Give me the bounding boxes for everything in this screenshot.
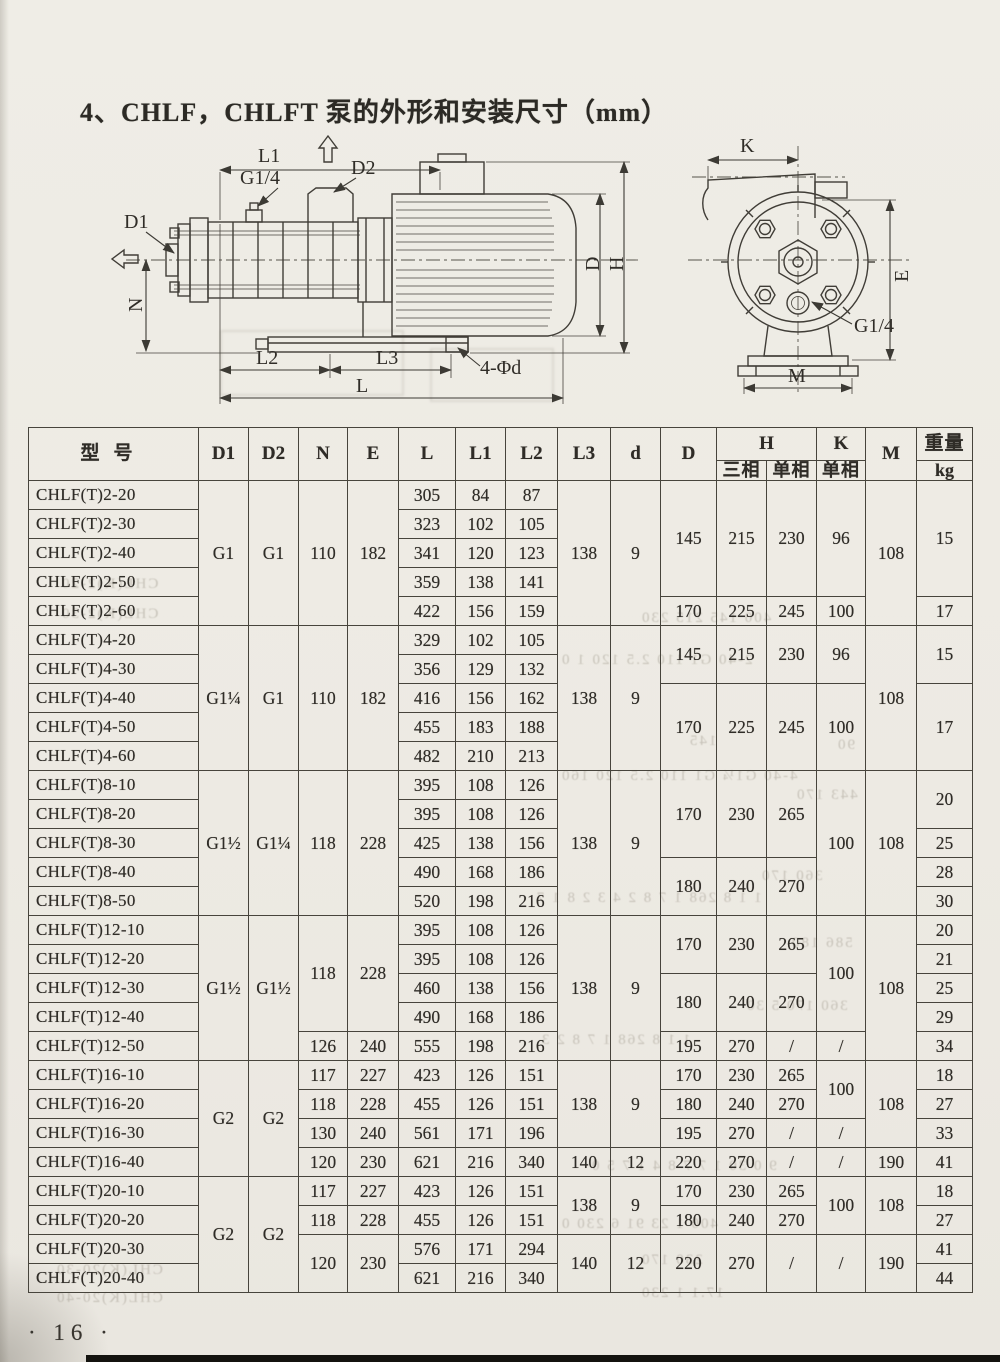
col-header-d-big: D bbox=[661, 428, 717, 481]
table-row: CHLF(T)2-20G1G11101823058487138914521523… bbox=[29, 481, 973, 510]
value-cell: 9 bbox=[611, 916, 661, 1061]
value-cell: 168 bbox=[456, 1003, 506, 1032]
value-cell: 395 bbox=[399, 800, 456, 829]
value-cell: 108 bbox=[866, 481, 917, 626]
value-cell: 41 bbox=[917, 1235, 973, 1264]
value-cell: 230 bbox=[717, 1061, 767, 1090]
flow-out-arrow-icon bbox=[319, 136, 337, 162]
value-cell: 329 bbox=[399, 626, 456, 655]
value-cell: G1 bbox=[249, 481, 299, 626]
value-cell: 198 bbox=[456, 1032, 506, 1061]
value-cell: 126 bbox=[456, 1061, 506, 1090]
lantern-bracket bbox=[358, 218, 392, 337]
value-cell: 25 bbox=[917, 974, 973, 1003]
value-cell: 168 bbox=[456, 858, 506, 887]
model-cell: CHLF(T)2-40 bbox=[29, 539, 199, 568]
value-cell: 183 bbox=[456, 713, 506, 742]
dim-label-d2: D2 bbox=[351, 157, 375, 179]
value-cell: 151 bbox=[506, 1206, 558, 1235]
value-cell: 108 bbox=[456, 800, 506, 829]
value-cell: 228 bbox=[348, 1090, 399, 1119]
value-cell: 12 bbox=[611, 1235, 661, 1293]
value-cell: 395 bbox=[399, 945, 456, 974]
value-cell: 100 bbox=[817, 916, 866, 1032]
value-cell: 130 bbox=[299, 1119, 348, 1148]
model-cell: CHLF(T)2-20 bbox=[29, 481, 199, 510]
col-header-kg: kg bbox=[917, 461, 973, 481]
value-cell: 423 bbox=[399, 1061, 456, 1090]
value-cell: G1 bbox=[199, 481, 249, 626]
value-cell: 132 bbox=[506, 655, 558, 684]
value-cell: 240 bbox=[717, 858, 767, 916]
value-cell: 118 bbox=[299, 916, 348, 1032]
table-row: CHLF(T)12-50126240555198216195270//34 bbox=[29, 1032, 973, 1061]
flow-in-arrow-icon bbox=[112, 250, 138, 268]
dim-label-m: M bbox=[788, 365, 806, 387]
value-cell: 230 bbox=[767, 626, 817, 684]
pump-table-body: CHLF(T)2-20G1G11101823058487138914521523… bbox=[29, 481, 973, 1293]
value-cell: 170 bbox=[661, 1177, 717, 1206]
model-cell: CHLF(T)2-50 bbox=[29, 568, 199, 597]
value-cell: 105 bbox=[506, 510, 558, 539]
value-cell: 162 bbox=[506, 684, 558, 713]
model-cell: CHLF(T)2-60 bbox=[29, 597, 199, 626]
model-cell: CHLF(T)12-20 bbox=[29, 945, 199, 974]
dim-label-4-phi-d: 4-Φd bbox=[480, 357, 521, 379]
col-header-h: H bbox=[717, 428, 817, 461]
model-cell: CHLF(T)4-30 bbox=[29, 655, 199, 684]
table-row: CHLF(T)4-4041615616217022524510017 bbox=[29, 684, 973, 713]
value-cell: 156 bbox=[456, 684, 506, 713]
col-header-n: N bbox=[299, 428, 348, 481]
value-cell: 27 bbox=[917, 1206, 973, 1235]
dimension-table: 型号 D1 D2 N E L L1 L2 L3 d D H K M 重量 三相 … bbox=[28, 427, 973, 1293]
value-cell: 621 bbox=[399, 1148, 456, 1177]
value-cell: 395 bbox=[399, 916, 456, 945]
value-cell: 555 bbox=[399, 1032, 456, 1061]
value-cell: 265 bbox=[767, 771, 817, 858]
model-cell: CHLF(T)20-10 bbox=[29, 1177, 199, 1206]
value-cell: 170 bbox=[661, 684, 717, 771]
value-cell: 228 bbox=[348, 916, 399, 1032]
table-row: CHLF(T)12-10G1½G1½1182283951081261389170… bbox=[29, 916, 973, 945]
col-header-l2: L2 bbox=[506, 428, 558, 481]
value-cell: 240 bbox=[717, 974, 767, 1032]
pump-side-view-drawing: L1 G1/4 D2 D1 N L2 L3 L 4-Φd D H bbox=[108, 132, 648, 422]
value-cell: 490 bbox=[399, 858, 456, 887]
value-cell: 138 bbox=[558, 1061, 611, 1148]
value-cell: 460 bbox=[399, 974, 456, 1003]
value-cell: 270 bbox=[717, 1148, 767, 1177]
value-cell: 18 bbox=[917, 1177, 973, 1206]
dim-label-g14-end: G1/4 bbox=[854, 315, 894, 337]
value-cell: 245 bbox=[767, 597, 817, 626]
model-cell: CHLF(T)16-20 bbox=[29, 1090, 199, 1119]
col-header-d1: D1 bbox=[199, 428, 249, 481]
value-cell: 138 bbox=[456, 974, 506, 1003]
value-cell: 265 bbox=[767, 1177, 817, 1206]
value-cell: 84 bbox=[456, 481, 506, 510]
value-cell: 576 bbox=[399, 1235, 456, 1264]
value-cell: 195 bbox=[661, 1119, 717, 1148]
table-row: CHLF(T)20-10G2G2117227423126151138917023… bbox=[29, 1177, 973, 1206]
value-cell: 240 bbox=[717, 1090, 767, 1119]
value-cell: 240 bbox=[348, 1032, 399, 1061]
value-cell: 422 bbox=[399, 597, 456, 626]
model-cell: CHLF(T)8-50 bbox=[29, 887, 199, 916]
value-cell: 425 bbox=[399, 829, 456, 858]
value-cell: 15 bbox=[917, 481, 973, 597]
value-cell: 138 bbox=[558, 626, 611, 771]
value-cell: 9 bbox=[611, 1061, 661, 1148]
value-cell: 138 bbox=[558, 1177, 611, 1235]
value-cell: 108 bbox=[456, 916, 506, 945]
value-cell: 151 bbox=[506, 1090, 558, 1119]
value-cell: 118 bbox=[299, 771, 348, 916]
value-cell: 25 bbox=[917, 829, 973, 858]
value-cell: 621 bbox=[399, 1264, 456, 1293]
value-cell: 44 bbox=[917, 1264, 973, 1293]
model-cell: CHLF(T)12-50 bbox=[29, 1032, 199, 1061]
value-cell: 220 bbox=[661, 1148, 717, 1177]
base-plate bbox=[256, 337, 468, 352]
col-header-e: E bbox=[348, 428, 399, 481]
value-cell: 561 bbox=[399, 1119, 456, 1148]
value-cell: 270 bbox=[767, 1090, 817, 1119]
value-cell: 27 bbox=[917, 1090, 973, 1119]
value-cell: 118 bbox=[299, 1090, 348, 1119]
table-row: CHLF(T)16-4012023062121634014012220270//… bbox=[29, 1148, 973, 1177]
value-cell: 215 bbox=[717, 626, 767, 684]
value-cell: 265 bbox=[767, 916, 817, 974]
value-cell: 20 bbox=[917, 916, 973, 945]
value-cell: 520 bbox=[399, 887, 456, 916]
value-cell: 120 bbox=[299, 1148, 348, 1177]
model-cell: CHLF(T)4-60 bbox=[29, 742, 199, 771]
value-cell: 171 bbox=[456, 1119, 506, 1148]
value-cell: 225 bbox=[717, 597, 767, 626]
value-cell: 126 bbox=[456, 1206, 506, 1235]
value-cell: 220 bbox=[661, 1235, 717, 1293]
motor-fins bbox=[396, 202, 554, 326]
value-cell: 96 bbox=[817, 481, 866, 597]
col-header-model: 型号 bbox=[29, 428, 199, 481]
value-cell: 110 bbox=[299, 481, 348, 626]
value-cell: 30 bbox=[917, 887, 973, 916]
value-cell: 180 bbox=[661, 1206, 717, 1235]
value-cell: 126 bbox=[506, 916, 558, 945]
col-header-k: K bbox=[817, 428, 866, 461]
table-row: CHLF(T)16-10G2G2117227423126151138917023… bbox=[29, 1061, 973, 1090]
col-header-l1: L1 bbox=[456, 428, 506, 481]
dim-label-d1: D1 bbox=[124, 211, 148, 233]
value-cell: 129 bbox=[456, 655, 506, 684]
value-cell: / bbox=[817, 1119, 866, 1148]
model-cell: CHLF(T)2-30 bbox=[29, 510, 199, 539]
value-cell: 100 bbox=[817, 1061, 866, 1119]
value-cell: 240 bbox=[348, 1119, 399, 1148]
value-cell: G2 bbox=[249, 1177, 299, 1293]
value-cell: 213 bbox=[506, 742, 558, 771]
col-header-h-3phase: 三相 bbox=[717, 461, 767, 481]
dim-label-l1: L1 bbox=[258, 145, 280, 167]
value-cell: 29 bbox=[917, 1003, 973, 1032]
col-header-weight: 重量 bbox=[917, 428, 973, 461]
value-cell: 270 bbox=[717, 1032, 767, 1061]
model-cell: CHLF(T)8-20 bbox=[29, 800, 199, 829]
value-cell: 156 bbox=[506, 829, 558, 858]
value-cell: 323 bbox=[399, 510, 456, 539]
value-cell: 110 bbox=[299, 626, 348, 771]
value-cell: 17 bbox=[917, 684, 973, 771]
value-cell: 341 bbox=[399, 539, 456, 568]
model-cell: CHLF(T)12-40 bbox=[29, 1003, 199, 1032]
dim-label-k: K bbox=[740, 135, 755, 157]
value-cell: 170 bbox=[661, 597, 717, 626]
model-cell: CHLF(T)12-30 bbox=[29, 974, 199, 1003]
value-cell: 156 bbox=[456, 597, 506, 626]
value-cell: 228 bbox=[348, 771, 399, 916]
dim-label-h: H bbox=[606, 257, 628, 271]
value-cell: 186 bbox=[506, 858, 558, 887]
discharge-port bbox=[308, 188, 353, 222]
value-cell: 126 bbox=[506, 800, 558, 829]
value-cell: 159 bbox=[506, 597, 558, 626]
value-cell: 34 bbox=[917, 1032, 973, 1061]
value-cell: 227 bbox=[348, 1177, 399, 1206]
value-cell: G1¼ bbox=[199, 626, 249, 771]
value-cell: 141 bbox=[506, 568, 558, 597]
value-cell: 270 bbox=[767, 858, 817, 916]
page-title: 4、CHLF，CHLFT 泵的外形和安装尺寸（mm） bbox=[80, 92, 668, 129]
value-cell: 230 bbox=[348, 1148, 399, 1177]
value-cell: 9 bbox=[611, 1177, 661, 1235]
model-cell: CHLF(T)8-40 bbox=[29, 858, 199, 887]
value-cell: 230 bbox=[348, 1235, 399, 1293]
value-cell: 230 bbox=[717, 1177, 767, 1206]
value-cell: 182 bbox=[348, 481, 399, 626]
value-cell: 108 bbox=[866, 771, 917, 916]
value-cell: 108 bbox=[866, 916, 917, 1061]
value-cell: 108 bbox=[456, 771, 506, 800]
value-cell: 455 bbox=[399, 1206, 456, 1235]
table-row: CHLF(T)8-10G1½G1¼11822839510812613891702… bbox=[29, 771, 973, 800]
dimension-table-wrap: 型号 D1 D2 N E L L1 L2 L3 d D H K M 重量 三相 … bbox=[28, 427, 973, 1293]
value-cell: 96 bbox=[817, 626, 866, 684]
value-cell: G2 bbox=[199, 1177, 249, 1293]
value-cell: 17 bbox=[917, 597, 973, 626]
value-cell: G1½ bbox=[249, 916, 299, 1061]
value-cell: 196 bbox=[506, 1119, 558, 1148]
value-cell: 216 bbox=[456, 1264, 506, 1293]
model-cell: CHLF(T)16-10 bbox=[29, 1061, 199, 1090]
value-cell: 170 bbox=[661, 771, 717, 858]
value-cell: 138 bbox=[558, 481, 611, 626]
model-cell: CHLF(T)12-10 bbox=[29, 916, 199, 945]
value-cell: 126 bbox=[506, 771, 558, 800]
value-cell: 108 bbox=[866, 1177, 917, 1235]
value-cell: 117 bbox=[299, 1061, 348, 1090]
value-cell: 28 bbox=[917, 858, 973, 887]
value-cell: 120 bbox=[456, 539, 506, 568]
value-cell: G1 bbox=[249, 626, 299, 771]
value-cell: / bbox=[767, 1032, 817, 1061]
value-cell: 216 bbox=[506, 887, 558, 916]
value-cell: 20 bbox=[917, 771, 973, 829]
value-cell: 265 bbox=[767, 1061, 817, 1090]
value-cell: 228 bbox=[348, 1206, 399, 1235]
value-cell: 123 bbox=[506, 539, 558, 568]
dim-label-l2: L2 bbox=[256, 347, 278, 369]
value-cell: 41 bbox=[917, 1148, 973, 1177]
model-cell: CHLF(T)20-20 bbox=[29, 1206, 199, 1235]
value-cell: 340 bbox=[506, 1264, 558, 1293]
value-cell: 108 bbox=[866, 1061, 917, 1148]
value-cell: G2 bbox=[199, 1061, 249, 1177]
value-cell: 340 bbox=[506, 1148, 558, 1177]
value-cell: 356 bbox=[399, 655, 456, 684]
value-cell: 100 bbox=[817, 1177, 866, 1235]
value-cell: G1¼ bbox=[249, 771, 299, 916]
value-cell: 126 bbox=[456, 1177, 506, 1206]
value-cell: 108 bbox=[456, 945, 506, 974]
value-cell: 180 bbox=[661, 974, 717, 1032]
value-cell: 108 bbox=[866, 626, 917, 771]
table-row: CHLF(T)16-30130240561171196195270//33 bbox=[29, 1119, 973, 1148]
value-cell: 215 bbox=[717, 481, 767, 597]
value-cell: 9 bbox=[611, 771, 661, 916]
value-cell: 156 bbox=[506, 974, 558, 1003]
model-cell: CHLF(T)8-10 bbox=[29, 771, 199, 800]
value-cell: 171 bbox=[456, 1235, 506, 1264]
col-header-m: M bbox=[866, 428, 917, 481]
value-cell: 138 bbox=[558, 916, 611, 1061]
value-cell: 33 bbox=[917, 1119, 973, 1148]
col-header-l: L bbox=[399, 428, 456, 481]
value-cell: 102 bbox=[456, 626, 506, 655]
col-header-l3: L3 bbox=[558, 428, 611, 481]
value-cell: 9 bbox=[611, 481, 661, 626]
dim-label-n: N bbox=[125, 298, 147, 312]
value-cell: 423 bbox=[399, 1177, 456, 1206]
value-cell: 305 bbox=[399, 481, 456, 510]
model-cell: CHLF(T)20-40 bbox=[29, 1264, 199, 1293]
value-cell: 117 bbox=[299, 1177, 348, 1206]
value-cell: 21 bbox=[917, 945, 973, 974]
value-cell: 140 bbox=[558, 1235, 611, 1293]
col-header-d-small: d bbox=[611, 428, 661, 481]
value-cell: 118 bbox=[299, 1206, 348, 1235]
value-cell: 15 bbox=[917, 626, 973, 684]
motor-body bbox=[392, 154, 576, 336]
value-cell: 490 bbox=[399, 1003, 456, 1032]
value-cell: 102 bbox=[456, 510, 506, 539]
value-cell: 270 bbox=[717, 1235, 767, 1293]
value-cell: 294 bbox=[506, 1235, 558, 1264]
value-cell: 270 bbox=[767, 974, 817, 1032]
dim-label-g14: G1/4 bbox=[240, 167, 280, 189]
table-row: CHLF(T)2-6042215615917022524510017 bbox=[29, 597, 973, 626]
value-cell: G2 bbox=[249, 1061, 299, 1177]
value-cell: / bbox=[767, 1235, 817, 1293]
value-cell: 126 bbox=[456, 1090, 506, 1119]
value-cell: 227 bbox=[348, 1061, 399, 1090]
model-cell: CHLF(T)4-40 bbox=[29, 684, 199, 713]
value-cell: 210 bbox=[456, 742, 506, 771]
value-cell: / bbox=[767, 1148, 817, 1177]
value-cell: 170 bbox=[661, 916, 717, 974]
value-cell: 12 bbox=[611, 1148, 661, 1177]
g14-plug bbox=[246, 203, 262, 222]
value-cell: 140 bbox=[558, 1148, 611, 1177]
value-cell: 105 bbox=[506, 626, 558, 655]
value-cell: / bbox=[817, 1148, 866, 1177]
value-cell: 87 bbox=[506, 481, 558, 510]
value-cell: 359 bbox=[399, 568, 456, 597]
value-cell: 120 bbox=[299, 1235, 348, 1293]
scan-edge-bar bbox=[86, 1355, 1000, 1362]
value-cell: 126 bbox=[506, 945, 558, 974]
value-cell: 151 bbox=[506, 1061, 558, 1090]
value-cell: 216 bbox=[456, 1148, 506, 1177]
value-cell: 198 bbox=[456, 887, 506, 916]
col-header-k-1phase: 单相 bbox=[817, 461, 866, 481]
model-cell: CHLF(T)16-40 bbox=[29, 1148, 199, 1177]
value-cell: 100 bbox=[817, 684, 866, 771]
value-cell: 416 bbox=[399, 684, 456, 713]
value-cell: 195 bbox=[661, 1032, 717, 1061]
value-cell: 190 bbox=[866, 1148, 917, 1177]
value-cell: 455 bbox=[399, 713, 456, 742]
value-cell: 188 bbox=[506, 713, 558, 742]
pump-end-view-drawing: K G1/4 E M bbox=[660, 130, 980, 420]
value-cell: 395 bbox=[399, 771, 456, 800]
value-cell: 482 bbox=[399, 742, 456, 771]
value-cell: 180 bbox=[661, 1090, 717, 1119]
value-cell: 100 bbox=[817, 597, 866, 626]
model-cell: CHLF(T)8-30 bbox=[29, 829, 199, 858]
value-cell: 182 bbox=[348, 626, 399, 771]
model-cell: CHLF(T)4-50 bbox=[29, 713, 199, 742]
value-cell: 145 bbox=[661, 626, 717, 684]
model-cell: CHLF(T)20-30 bbox=[29, 1235, 199, 1264]
value-cell: 138 bbox=[456, 829, 506, 858]
value-cell: G1½ bbox=[199, 771, 249, 916]
value-cell: 190 bbox=[866, 1235, 917, 1293]
value-cell: 9 bbox=[611, 626, 661, 771]
table-row: CHLF(T)20-3012023057617129414012220270//… bbox=[29, 1235, 973, 1264]
dim-label-e: E bbox=[891, 270, 913, 282]
value-cell: 230 bbox=[717, 771, 767, 858]
value-cell: 186 bbox=[506, 1003, 558, 1032]
value-cell: 138 bbox=[456, 568, 506, 597]
value-cell: 270 bbox=[717, 1119, 767, 1148]
value-cell: 230 bbox=[767, 481, 817, 597]
value-cell: / bbox=[817, 1235, 866, 1293]
value-cell: 245 bbox=[767, 684, 817, 771]
dim-label-l3: L3 bbox=[376, 347, 398, 369]
dim-label-d: D bbox=[582, 257, 604, 271]
value-cell: 100 bbox=[817, 771, 866, 916]
col-header-d2: D2 bbox=[249, 428, 299, 481]
value-cell: 230 bbox=[717, 916, 767, 974]
page-number: · 16 · bbox=[28, 1320, 114, 1346]
col-header-h-1phase: 单相 bbox=[767, 461, 817, 481]
value-cell: 18 bbox=[917, 1061, 973, 1090]
value-cell: 240 bbox=[717, 1206, 767, 1235]
value-cell: / bbox=[817, 1032, 866, 1061]
model-cell: CHLF(T)16-30 bbox=[29, 1119, 199, 1148]
